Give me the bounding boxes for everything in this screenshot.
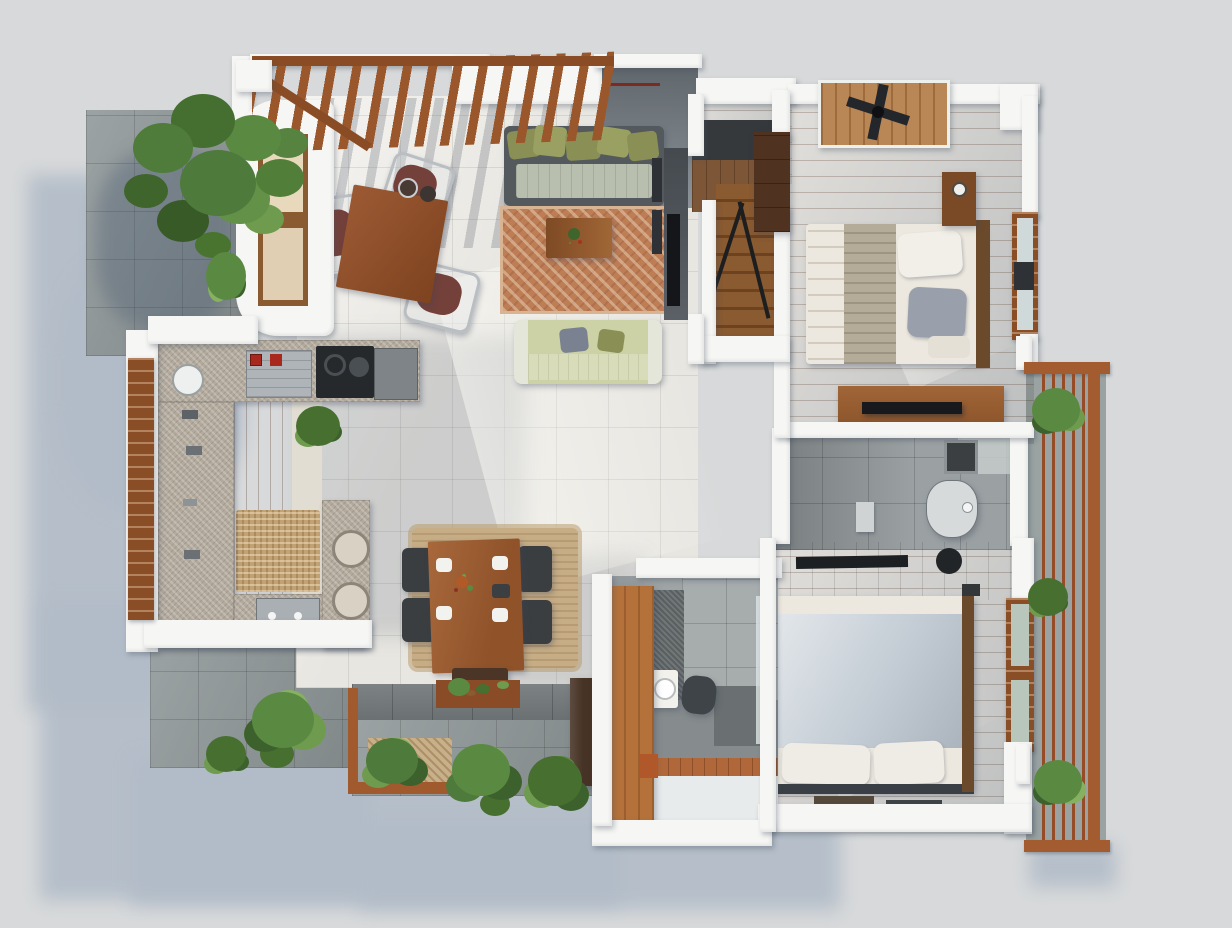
wall-tv <box>667 214 680 306</box>
bed1-pillow-gray <box>907 287 968 340</box>
wall-spine-mid <box>772 428 790 544</box>
cooktop <box>316 346 374 398</box>
balcony-plant-mid <box>1028 578 1068 616</box>
bed2-pillow <box>781 742 870 785</box>
wall-right-toilet <box>1010 432 1028 546</box>
balcony-rail-outer <box>1088 362 1100 852</box>
bed2-duvet <box>770 614 974 748</box>
pergola-top-beam <box>252 56 614 66</box>
garden-tree <box>180 150 256 216</box>
sofa-seat <box>516 164 652 198</box>
console-fan <box>936 548 962 574</box>
oven-knob-red <box>250 354 262 366</box>
table-centerpiece <box>456 576 468 588</box>
patio-fern <box>528 756 582 806</box>
wall-living-stair-lower <box>688 314 704 364</box>
floor-drain <box>944 440 978 474</box>
floor-plan-render <box>0 0 1232 928</box>
bar-stool <box>332 582 370 620</box>
bed1-fold <box>928 336 970 358</box>
kitchen-patio-fern <box>252 692 314 748</box>
nightstand-lamp <box>952 182 967 197</box>
patio-fern <box>452 744 510 796</box>
balcony-plant-top <box>1032 388 1080 432</box>
washbasin-bowl <box>654 678 676 700</box>
loveseat-seat-ribs <box>528 354 648 380</box>
loveseat-cushion-gray <box>559 327 589 354</box>
table-glassware <box>398 178 418 198</box>
ceiling-fan-hub <box>872 106 884 118</box>
bed1-headboard <box>976 220 990 368</box>
bay-side-plant <box>296 406 340 446</box>
toilet-step <box>856 502 874 532</box>
toilet-flush-button <box>962 502 973 513</box>
desk-tv <box>862 402 962 414</box>
round-sink <box>172 364 204 396</box>
bed1-throw-blanket <box>844 224 896 364</box>
bath-threshold <box>644 758 778 778</box>
coffee-table <box>546 218 612 258</box>
sofa-cushion <box>626 130 659 161</box>
bedroom2-window-glass <box>1011 604 1029 666</box>
balcony-plant-bottom <box>1034 760 1082 804</box>
wall-spine-lower <box>760 538 776 832</box>
coffee-table-plant <box>568 228 580 240</box>
planter-frame-left <box>348 688 358 794</box>
dining-chair <box>518 546 552 592</box>
stair-wall-right <box>774 206 790 438</box>
bed2-pillow <box>873 740 945 786</box>
kitchen-side-sink <box>374 348 418 400</box>
flower-box-plants <box>448 678 470 696</box>
bed1-quilt-texture <box>808 228 846 360</box>
bed2-frame-side <box>962 596 974 792</box>
console-soundbar <box>796 555 908 569</box>
place-setting <box>436 558 452 572</box>
wall-right-upper <box>1022 96 1038 218</box>
loveseat-arm <box>514 320 528 384</box>
counter-items <box>182 410 198 419</box>
wall-living-stair-upper <box>688 94 704 156</box>
console-box <box>962 584 980 596</box>
breakfast-table <box>336 184 449 303</box>
wall-kitchen-bottom <box>144 620 372 648</box>
kitchen-counter-left <box>158 402 234 648</box>
wall-bottom-right <box>758 804 1032 832</box>
sink-taps <box>268 612 276 620</box>
bedroom1-wardrobe <box>754 132 790 232</box>
patio-fern <box>366 738 418 784</box>
loveseat-arm <box>648 320 662 384</box>
coat-hooks <box>652 158 662 202</box>
kitchen-patio-fern-small <box>206 736 246 772</box>
wall-bedroom1-toilet <box>786 422 1034 438</box>
wall-kitchen-top <box>148 316 258 344</box>
nightstand <box>942 172 976 226</box>
bed2-footboard <box>770 784 974 794</box>
bedroom1-window-glass <box>1017 218 1033 268</box>
stair-wall-bottom <box>702 336 790 362</box>
entry-palm <box>206 252 246 300</box>
pergola-post <box>236 60 272 92</box>
bed1-pillow-white <box>897 230 964 278</box>
balcony-step-lower <box>1016 744 1030 784</box>
wall-bathroom-left <box>592 574 612 826</box>
bathroom-door <box>610 586 654 822</box>
orange-pot <box>640 754 658 778</box>
window-curtain <box>1014 262 1034 290</box>
cooktop-burner <box>324 354 346 376</box>
bedroom2-console <box>768 542 1030 600</box>
serving-tray <box>492 584 510 598</box>
kitchen-louver-window <box>128 358 154 620</box>
rattan-mat <box>236 510 320 592</box>
loveseat-cushion-green <box>597 328 626 353</box>
wall-bottom-left <box>592 820 772 846</box>
bar-stool <box>332 530 370 568</box>
